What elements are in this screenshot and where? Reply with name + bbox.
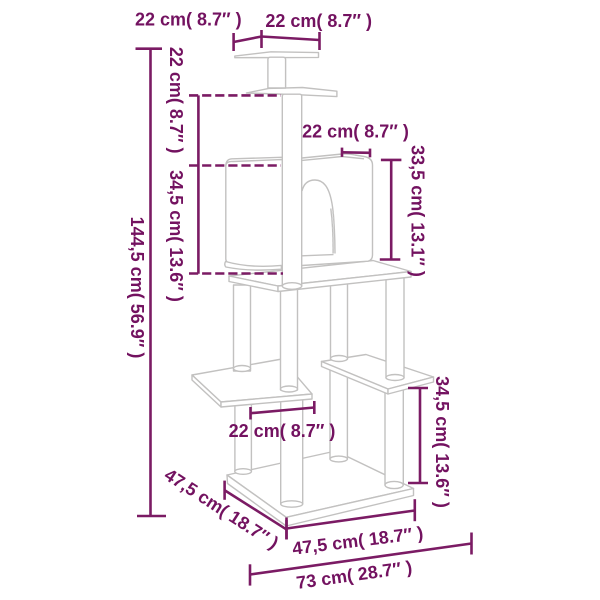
svg-text:22 cm( 8.7″ ): 22 cm( 8.7″ )	[302, 122, 409, 142]
svg-text:22 cm( 8.7″ ): 22 cm( 8.7″ )	[265, 11, 372, 31]
svg-text:22 cm( 8.7″ ): 22 cm( 8.7″ )	[229, 421, 336, 441]
svg-text:33,5 cm( 13.1″ ): 33,5 cm( 13.1″ )	[408, 145, 428, 277]
svg-text:144,5 cm( 56.9″ ): 144,5 cm( 56.9″ )	[127, 217, 147, 359]
svg-text:34,5 cm( 13.6″ ): 34,5 cm( 13.6″ )	[432, 376, 452, 508]
svg-text:34,5 cm( 13.6″ ): 34,5 cm( 13.6″ )	[166, 170, 186, 302]
svg-text:22 cm( 8.7″ ): 22 cm( 8.7″ )	[166, 47, 186, 154]
svg-text:22 cm( 8.7″ ): 22 cm( 8.7″ )	[135, 9, 242, 29]
